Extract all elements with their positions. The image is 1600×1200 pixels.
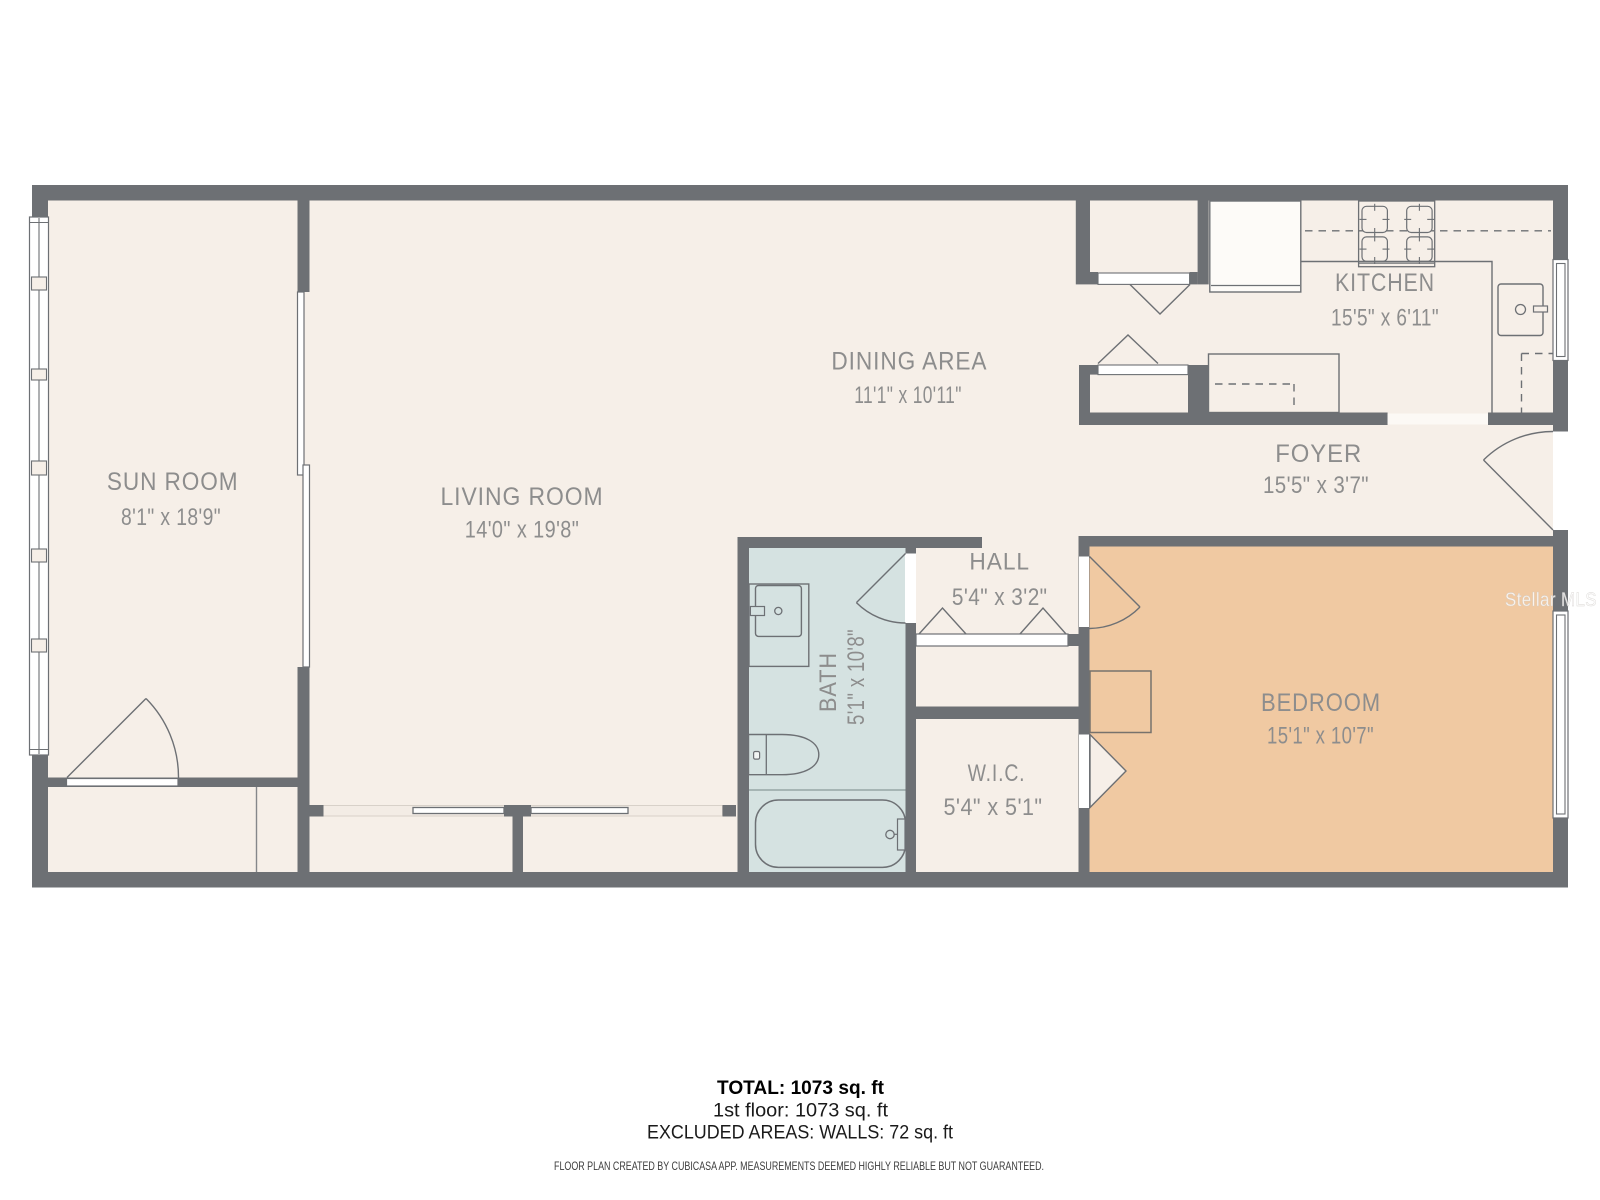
svg-text:KITCHEN: KITCHEN	[1335, 269, 1435, 297]
svg-text:EXCLUDED AREAS: WALLS: 72 sq.: EXCLUDED AREAS: WALLS: 72 sq. ft	[647, 1123, 954, 1144]
svg-text:15'5" x 6'11": 15'5" x 6'11"	[1331, 305, 1439, 332]
svg-text:8'1" x 18'9": 8'1" x 18'9"	[121, 504, 221, 531]
svg-text:5'4" x 3'2": 5'4" x 3'2"	[952, 584, 1048, 611]
svg-text:5'4" x 5'1": 5'4" x 5'1"	[944, 794, 1043, 821]
svg-text:1st floor: 1073 sq. ft: 1st floor: 1073 sq. ft	[713, 1101, 889, 1122]
svg-text:15'1" x 10'7": 15'1" x 10'7"	[1267, 723, 1374, 750]
svg-text:FLOOR PLAN CREATED BY CUBICASA: FLOOR PLAN CREATED BY CUBICASA APP. MEAS…	[554, 1159, 1044, 1173]
svg-text:11'1" x 10'11": 11'1" x 10'11"	[854, 382, 962, 409]
svg-text:14'0" x 19'8": 14'0" x 19'8"	[465, 517, 580, 544]
svg-text:BATH: BATH	[815, 652, 842, 712]
svg-text:W.I.C.: W.I.C.	[968, 760, 1026, 787]
svg-text:DINING AREA: DINING AREA	[831, 348, 987, 376]
svg-text:5'1" x 10'8": 5'1" x 10'8"	[843, 629, 870, 725]
svg-text:15'5" x 3'7": 15'5" x 3'7"	[1263, 472, 1369, 499]
svg-text:FOYER: FOYER	[1275, 440, 1362, 468]
svg-text:Stellar MLS: Stellar MLS	[1505, 589, 1597, 611]
svg-text:TOTAL: 1073 sq. ft: TOTAL: 1073 sq. ft	[717, 1078, 885, 1099]
svg-text:BEDROOM: BEDROOM	[1261, 689, 1381, 717]
svg-text:LIVING ROOM: LIVING ROOM	[441, 483, 604, 511]
svg-text:SUN ROOM: SUN ROOM	[107, 468, 239, 496]
svg-text:HALL: HALL	[969, 549, 1030, 576]
